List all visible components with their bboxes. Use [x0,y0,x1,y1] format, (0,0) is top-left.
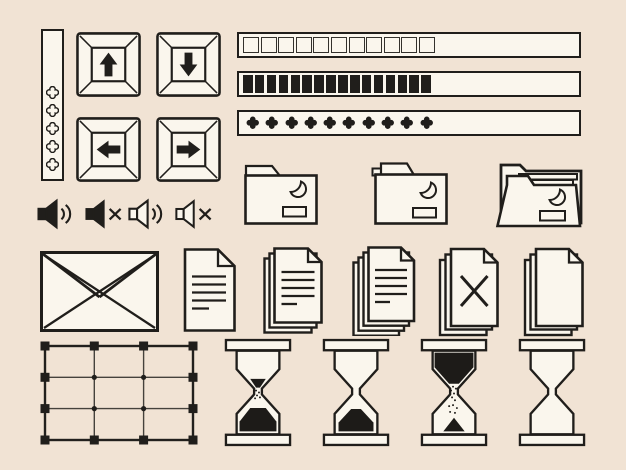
key-down-button[interactable] [155,31,222,98]
progress-segment [386,75,396,93]
clover-dot-icon [46,122,59,135]
sound-wave-icon [66,205,70,223]
progress-segment [296,37,312,53]
folder-closed-icon[interactable] [242,162,320,228]
volume-on-filled-icon[interactable] [37,197,81,231]
volume-on-outline-icon[interactable] [128,197,172,231]
progress-segment [398,75,408,93]
progress-segment [362,75,372,93]
hourglass-almost-done-icon [224,337,292,448]
document-stack-delete-icon[interactable] [435,245,501,337]
progress-segment [302,75,312,93]
progress-segment [366,37,382,53]
volume-mute-outline-icon[interactable] [175,197,217,231]
sound-wave-icon [61,209,64,220]
sound-wave-icon [157,205,161,223]
progress-segment [314,75,324,93]
progress-segment [409,75,419,93]
progress-segment [338,75,348,93]
progress-segment [243,75,253,93]
progress-segment [349,37,365,53]
progress-segment [419,37,435,53]
volume-mute-filled-icon[interactable] [85,197,127,231]
clover-dot-icon [323,116,337,130]
progress-bar-blocks [237,71,581,97]
progress-segment [278,37,294,53]
document-icon[interactable] [181,246,239,334]
clover-dot-icon [304,116,318,130]
document-stack-icon[interactable] [349,244,417,336]
folder-closed-inset-tab-icon[interactable] [370,160,450,228]
clover-dot-icon [46,140,59,153]
progress-segment [384,37,400,53]
progress-segment [421,75,431,93]
progress-segment [267,75,277,93]
clover-dot-icon [265,116,279,130]
folder-open-icon[interactable] [495,155,587,233]
progress-segment [350,75,360,93]
progress-segment [243,37,259,53]
progress-segment [279,75,289,93]
mute-x-icon [110,209,121,220]
progress-segment [401,37,417,53]
clover-dot-icon [420,116,434,130]
grid-handles [41,342,198,445]
grid-node-dots [92,375,147,412]
table-grid [40,341,198,445]
envelope-icon[interactable] [40,251,159,332]
clover-dot-icon [46,86,59,99]
progress-segment [313,37,329,53]
clover-dot-icon [246,116,260,130]
progress-segment [261,37,277,53]
progress-segment [291,75,301,93]
progress-segment [374,75,384,93]
blank-document-stack-icon[interactable] [520,245,586,337]
key-left-button[interactable] [75,116,142,183]
clover-dot-icon [400,116,414,130]
clover-dot-icon [342,116,356,130]
progress-bar-squares [237,32,581,58]
indicator-strip [41,29,64,181]
clover-dot-icon [362,116,376,130]
document-stack-icon[interactable] [261,245,325,335]
progress-segment [255,75,265,93]
progress-bar-clovers [237,110,581,136]
hourglass-done-icon [322,337,390,448]
key-up-button[interactable] [75,31,142,98]
key-right-button[interactable] [155,116,222,183]
hourglass-empty-icon [518,337,586,448]
clover-dot-icon [46,158,59,171]
retro-ui-elements-sheet [0,0,626,470]
clover-dot-icon [381,116,395,130]
clover-dot-icon [285,116,299,130]
mute-x-icon [200,209,211,220]
sound-wave-icon [152,209,155,220]
clover-dot-icon [46,104,59,117]
hourglass-started-icon [420,337,488,448]
progress-segment [326,75,336,93]
progress-segment [331,37,347,53]
